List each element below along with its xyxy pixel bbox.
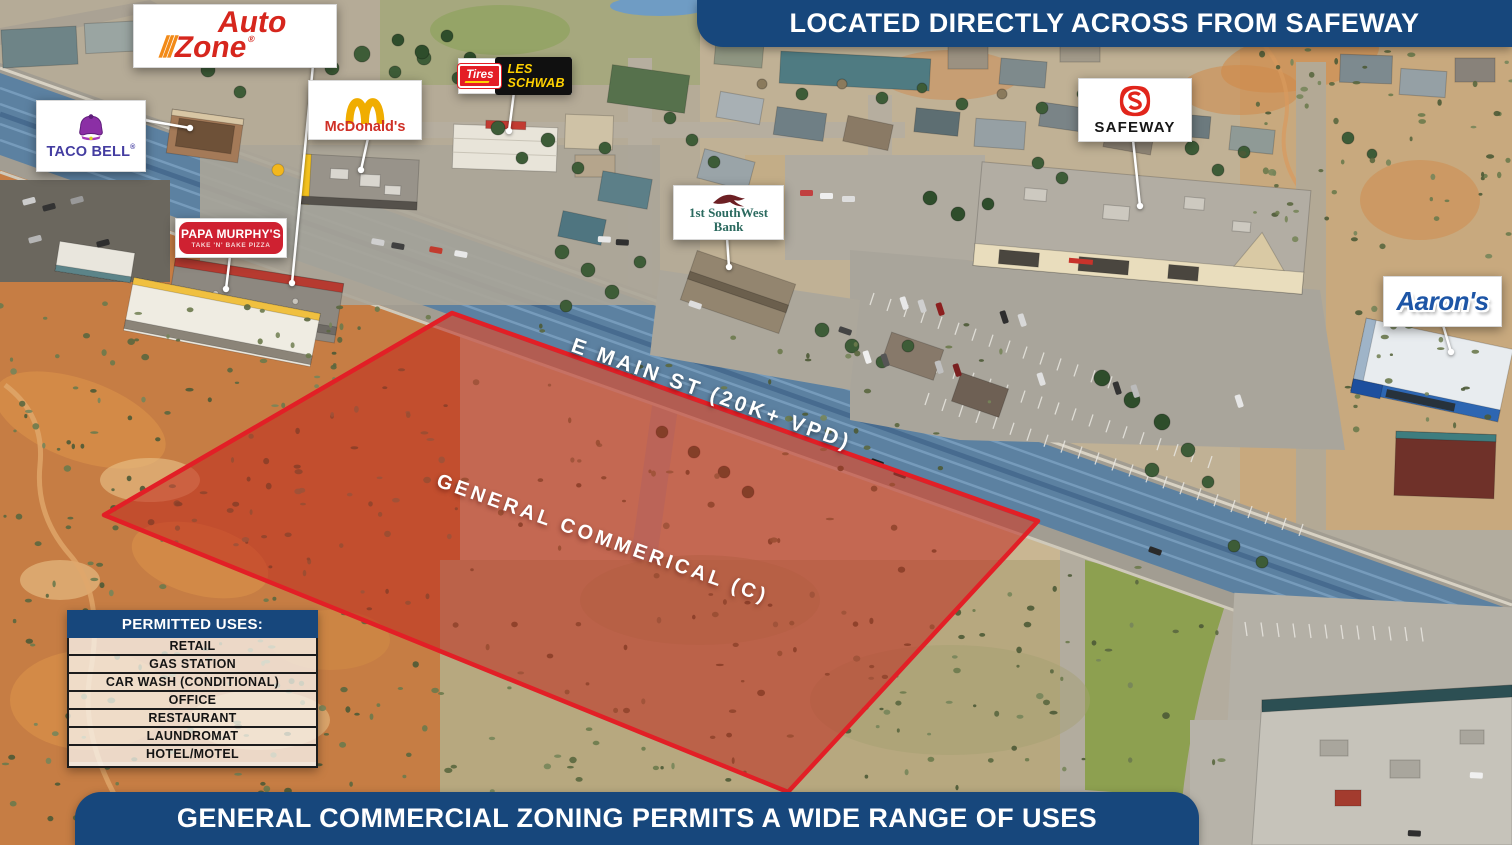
bottom-banner: GENERAL COMMERCIAL ZONING PERMITS A WIDE… [75, 792, 1199, 845]
callout-papa-murphys: PAPA MURPHY'S TAKE 'N' BAKE PIZZA [175, 218, 287, 258]
table-row: CAR WASH (CONDITIONAL) [69, 674, 316, 692]
callout-les-schwab: Tires LES SCHWAB [458, 58, 572, 94]
safeway-s-icon [1118, 84, 1152, 118]
papa-murphys-logo: PAPA MURPHY'S TAKE 'N' BAKE PIZZA [179, 222, 283, 254]
callout-taco-bell: TACO BELL® [36, 100, 146, 172]
table-row: RESTAURANT [69, 710, 316, 728]
table-row: HOTEL/MOTEL [69, 746, 316, 762]
taco-bell-building [166, 109, 243, 163]
top-banner: LOCATED DIRECTLY ACROSS FROM SAFEWAY [697, 0, 1512, 47]
callout-aarons: Aaron's [1383, 276, 1502, 327]
taco-bell-icon [74, 113, 108, 142]
table-row: LAUNDROMAT [69, 728, 316, 746]
permitted-uses-table: PERMITTED USES: RETAIL GAS STATION CAR W… [67, 610, 318, 768]
table-row: GAS STATION [69, 656, 316, 674]
mcdonalds-building [301, 154, 419, 210]
callout-safeway: SAFEWAY [1078, 78, 1192, 142]
table-row: OFFICE [69, 692, 316, 710]
callout-mcdonalds: McDonald's [308, 80, 422, 140]
callout-first-southwest-bank: 1st SouthWest Bank [673, 185, 784, 240]
table-row: RETAIL [69, 638, 316, 656]
autozone-logo: Auto ///Zone® [158, 11, 289, 60]
permitted-uses-header: PERMITTED USES: [67, 610, 318, 638]
aerial-flyer: E MAIN ST (20K+ VPD) GENERAL COMMERICAL … [0, 0, 1512, 845]
big-box-building [1252, 685, 1512, 845]
callout-autozone: Auto ///Zone® [133, 4, 337, 68]
